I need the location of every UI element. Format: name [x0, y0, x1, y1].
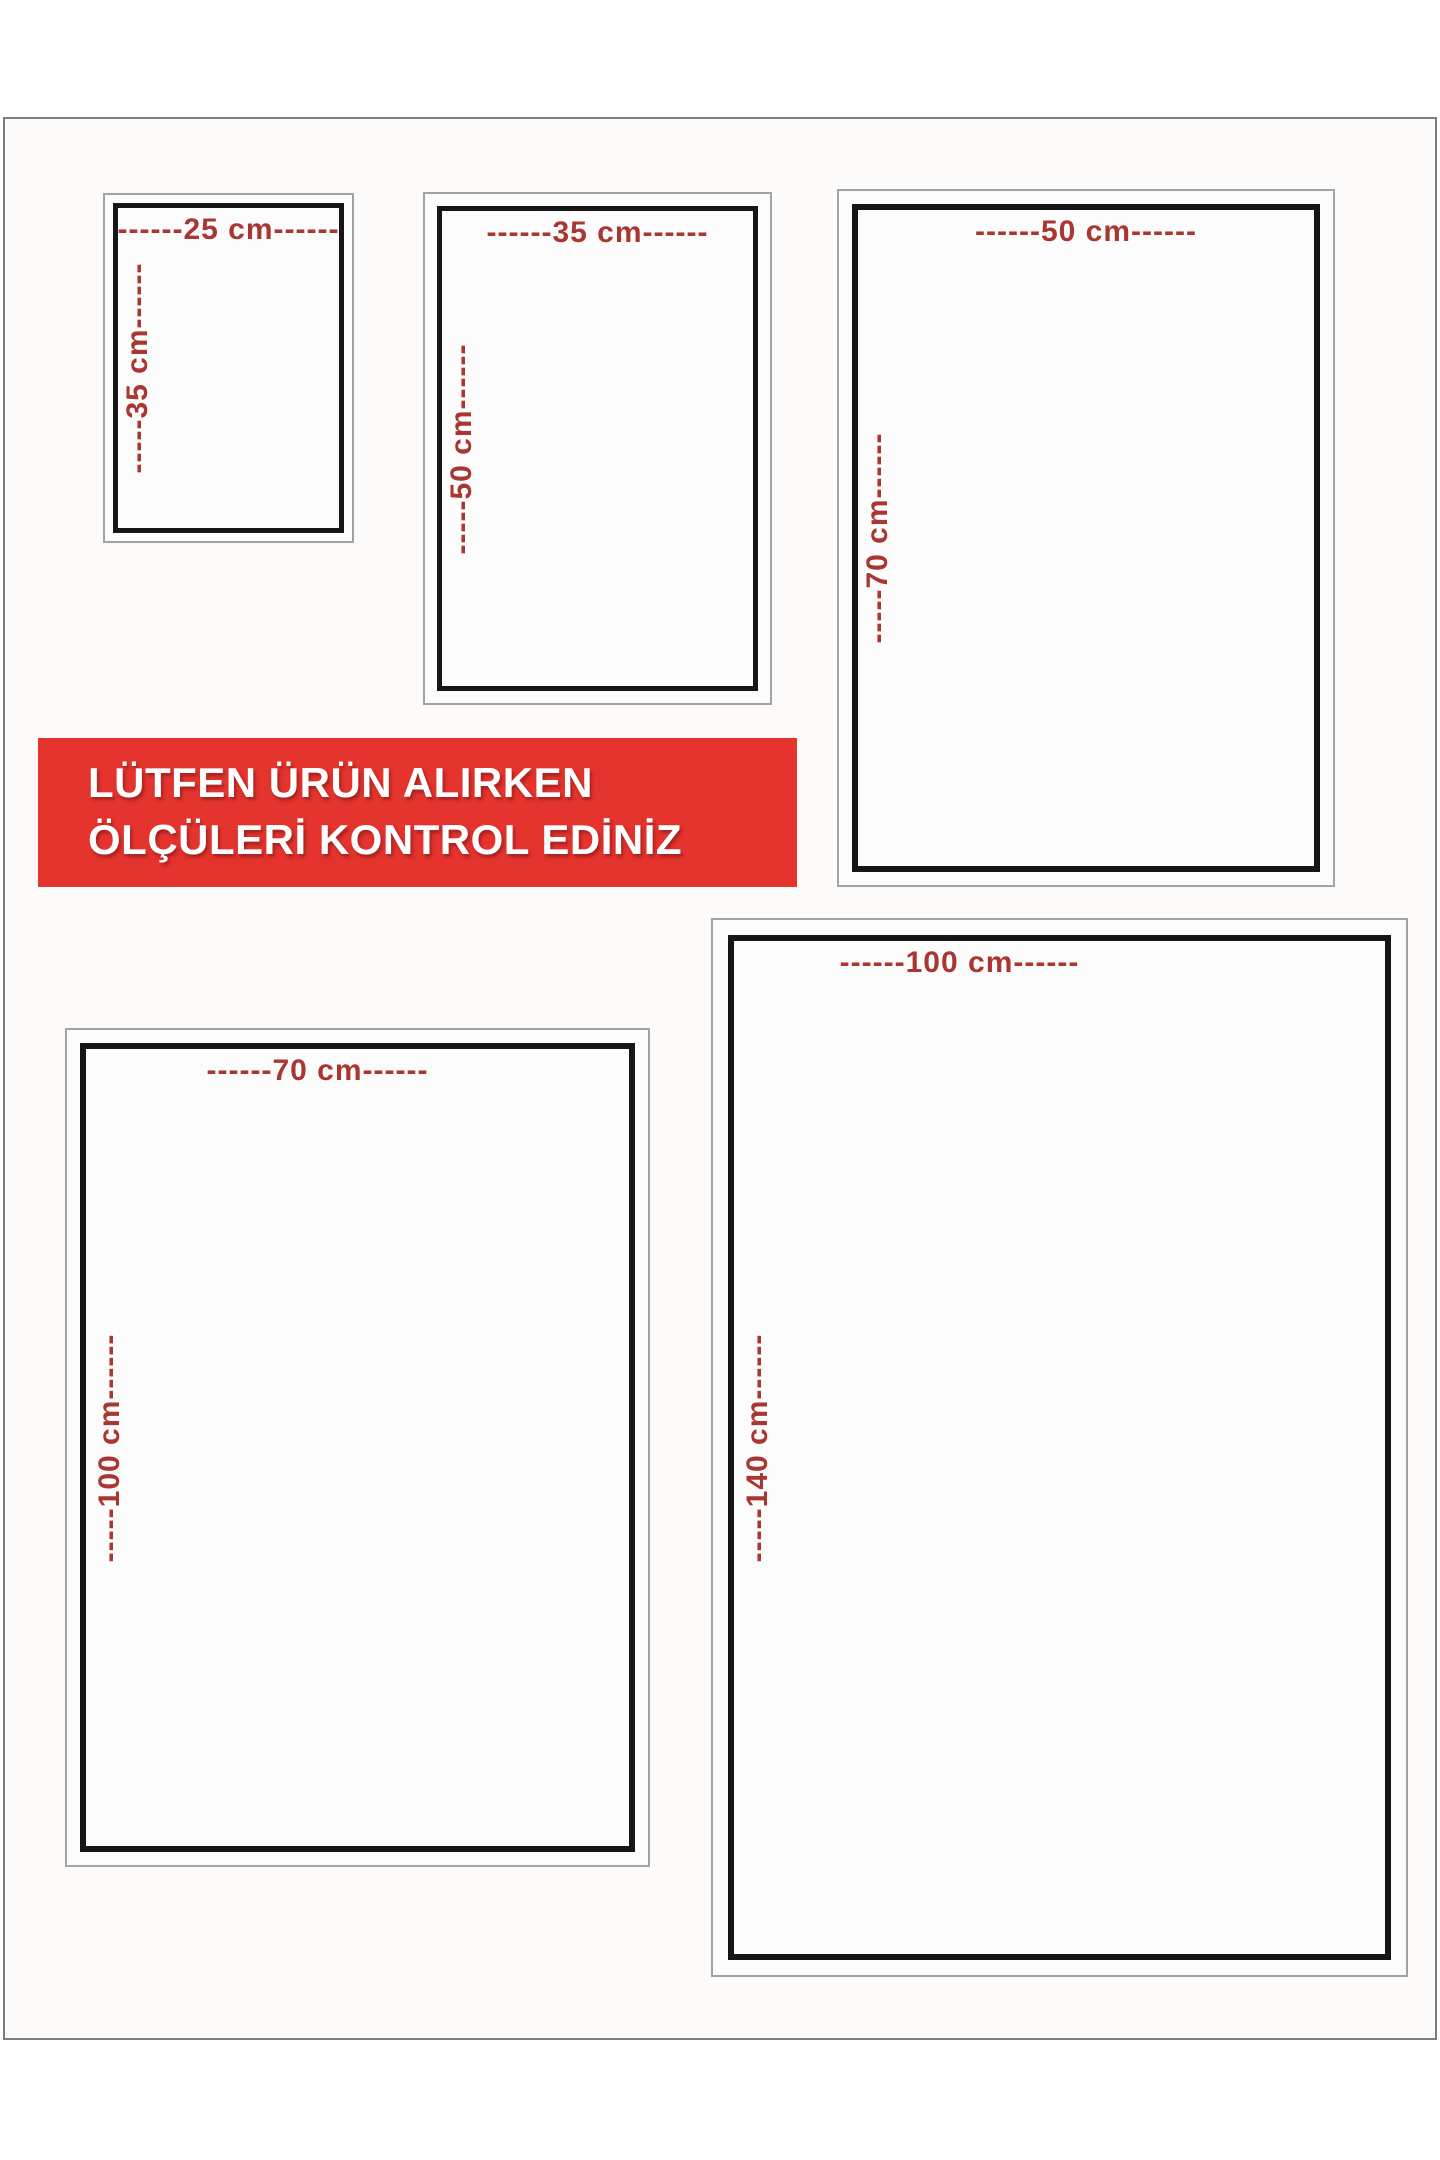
warning-banner-line-1: LÜTFEN ÜRÜN ALIRKEN	[88, 754, 797, 811]
height-dimension-label-50: -----50 cm------	[445, 343, 479, 554]
warning-banner-line-2: ÖLÇÜLERİ KONTROL EDİNİZ	[88, 811, 797, 868]
size-box-100x140: ------100 cm------ -----140 cm------	[711, 918, 1408, 1977]
size-box-50x70-frame: ------50 cm------ -----70 cm------	[852, 204, 1320, 872]
size-box-25x35-frame: ------25 cm------ -----35 cm------	[113, 203, 344, 533]
height-dimension-label-100: -----100 cm------	[93, 1333, 127, 1562]
size-guide-card: ------25 cm------ -----35 cm------ -----…	[3, 117, 1437, 2040]
size-box-70x100: ------70 cm------ -----100 cm------	[65, 1028, 650, 1867]
width-dimension-label-35: ------35 cm------	[487, 216, 709, 250]
size-box-100x140-frame: ------100 cm------ -----140 cm------	[728, 935, 1391, 1960]
width-dimension-label-25: ------25 cm------	[118, 213, 340, 247]
size-box-50x70: ------50 cm------ -----70 cm------	[837, 189, 1335, 887]
size-box-25x35: ------25 cm------ -----35 cm------	[103, 193, 354, 543]
size-guide-page: ------25 cm------ -----35 cm------ -----…	[0, 0, 1440, 2160]
size-box-35x50: ------35 cm------ -----50 cm------	[423, 192, 772, 705]
width-dimension-label-70: ------70 cm------	[207, 1054, 429, 1088]
height-dimension-label-140: -----140 cm------	[741, 1333, 775, 1562]
size-box-70x100-frame: ------70 cm------ -----100 cm------	[80, 1043, 635, 1852]
size-box-35x50-frame: ------35 cm------ -----50 cm------	[437, 206, 758, 691]
warning-banner: LÜTFEN ÜRÜN ALIRKEN ÖLÇÜLERİ KONTROL EDİ…	[38, 738, 797, 887]
width-dimension-label-50: ------50 cm------	[975, 215, 1197, 249]
height-dimension-label-35: -----35 cm------	[121, 263, 155, 474]
height-dimension-label-70: -----70 cm------	[861, 433, 895, 644]
width-dimension-label-100: ------100 cm------	[840, 946, 1080, 980]
